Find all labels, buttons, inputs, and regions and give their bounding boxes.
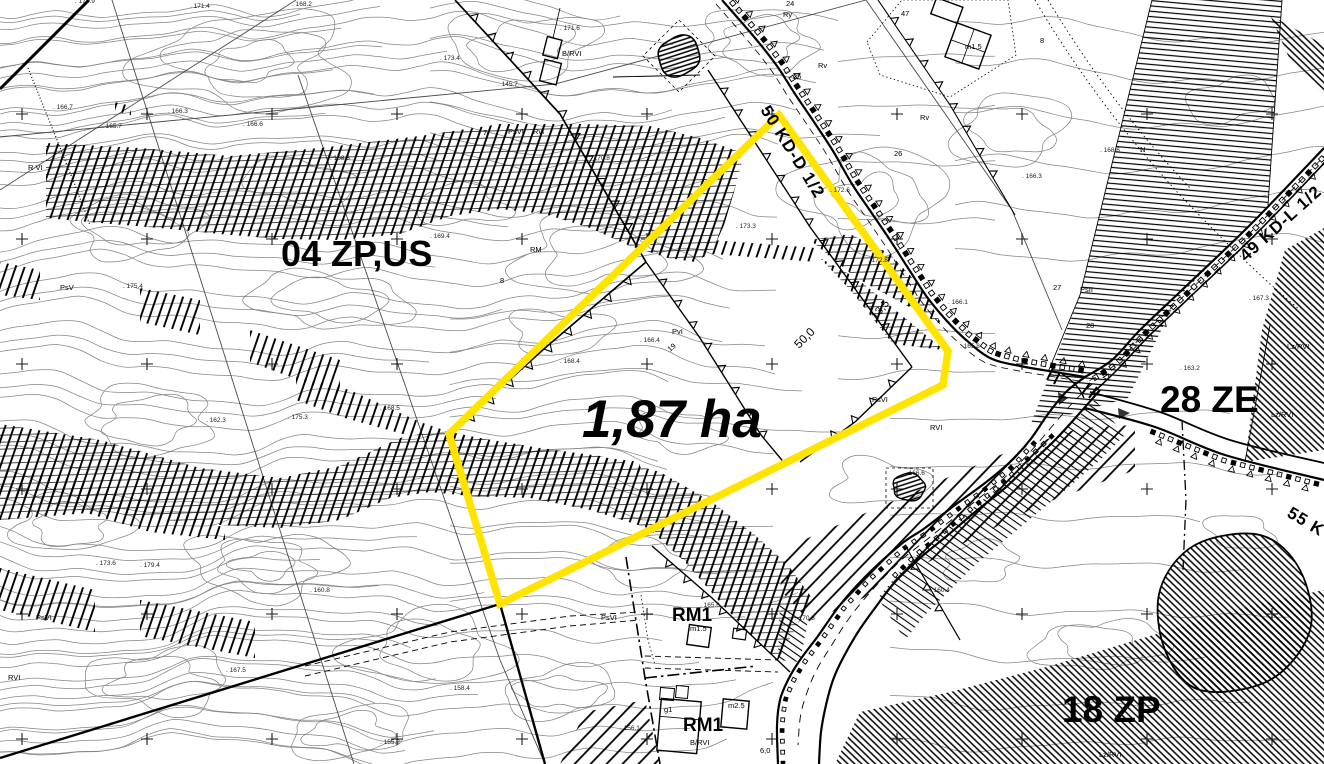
svg-text:. 166.7: . 166.7 (53, 104, 73, 111)
svg-text:7: 7 (483, 128, 487, 137)
svg-text:. 167.5: . 167.5 (226, 667, 246, 674)
svg-text:18 ZP: 18 ZP (1062, 689, 1161, 730)
svg-text:8: 8 (500, 276, 504, 285)
svg-text:. 166.6: . 166.6 (243, 121, 263, 128)
svg-text:. 160.8: . 160.8 (310, 587, 330, 594)
svg-text:04 ZP,US: 04 ZP,US (281, 233, 432, 274)
svg-text:. 160.4: . 160.4 (930, 587, 950, 594)
svg-text:28: 28 (1086, 321, 1094, 330)
svg-text:. 166.3: . 166.3 (1022, 173, 1042, 180)
svg-text:g1: g1 (664, 705, 672, 714)
svg-text:RVI: RVI (930, 423, 942, 432)
svg-text:47: 47 (901, 9, 909, 18)
svg-text:N: N (1140, 145, 1145, 154)
svg-text:Lz/RVI: Lz/RVI (1287, 342, 1309, 351)
svg-text:B/RVI: B/RVI (562, 49, 581, 58)
svg-text:R VI: R VI (28, 163, 43, 172)
svg-text:27: 27 (1053, 283, 1061, 292)
svg-text:. 172.6: . 172.6 (830, 187, 850, 194)
svg-text:. 166.6: . 166.6 (905, 470, 925, 477)
svg-text:. 165.6: . 165.6 (700, 602, 720, 609)
svg-text:. 173.6: . 173.6 (96, 560, 116, 567)
svg-text:. 170.9: . 170.9 (75, 0, 95, 5)
svg-text:PsVI: PsVI (36, 613, 52, 622)
svg-text:1,87 ha: 1,87 ha (582, 390, 762, 449)
svg-text:RvI: RvI (533, 127, 544, 136)
svg-text:PsVI: PsVI (508, 127, 524, 136)
svg-text:26: 26 (894, 149, 902, 158)
svg-text:m1.5: m1.5 (690, 624, 707, 633)
svg-text:PsII: PsII (1080, 285, 1093, 294)
svg-text:. 168.2: . 168.2 (292, 1, 312, 8)
svg-text:6,0: 6,0 (760, 746, 770, 755)
svg-text:Rv: Rv (920, 113, 929, 122)
svg-text:. 173.3: . 173.3 (736, 223, 756, 230)
svg-text:25: 25 (793, 72, 801, 81)
svg-text:Rv: Rv (818, 61, 827, 70)
svg-text:RM1: RM1 (683, 715, 724, 736)
svg-text:PsVI: PsVI (872, 395, 888, 404)
svg-text:. 162.3: . 162.3 (206, 417, 226, 424)
svg-text:24: 24 (786, 0, 794, 8)
svg-text:Ry: Ry (783, 10, 792, 19)
svg-text:. 168.4: . 168.4 (560, 358, 580, 365)
svg-text:PvI: PvI (672, 327, 683, 336)
svg-text:. 171.6: . 171.6 (560, 25, 580, 32)
svg-text:. 168.5: . 168.5 (380, 405, 400, 412)
svg-text:. 175.4: . 175.4 (123, 283, 143, 290)
svg-text:. 172.8: . 172.8 (868, 257, 888, 264)
svg-text:Lz/RVI: Lz/RVI (1099, 750, 1121, 759)
svg-text:. 163.2: . 163.2 (1180, 365, 1200, 372)
svg-text:. 168.3: . 168.3 (330, 155, 350, 162)
svg-text:. 179.4: . 179.4 (140, 562, 160, 569)
svg-text:. 158.4: . 158.4 (450, 685, 470, 692)
svg-text:. 166.1: . 166.1 (948, 299, 968, 306)
svg-text:. 167.3: . 167.3 (1249, 295, 1269, 302)
svg-text:. 156.1: . 156.1 (620, 725, 640, 732)
svg-text:RVI: RVI (8, 673, 20, 682)
svg-text:. 166.3: . 166.3 (168, 108, 188, 115)
svg-text:. 165.7: . 165.7 (102, 123, 122, 130)
svg-text:. 168.6: . 168.6 (1100, 147, 1120, 154)
svg-text:B/RVI: B/RVI (690, 738, 709, 747)
svg-text:. 170.8: . 170.8 (590, 155, 610, 162)
svg-text:. 166.4: . 166.4 (640, 337, 660, 344)
svg-text:PsVI: PsVI (601, 613, 617, 622)
svg-text:Lz/RVI: Lz/RVI (1271, 410, 1293, 419)
svg-text:RM: RM (530, 245, 542, 254)
svg-text:m1.5: m1.5 (965, 42, 982, 51)
svg-text:. 173.4: . 173.4 (440, 55, 460, 62)
svg-text:28 ZE: 28 ZE (1160, 379, 1259, 420)
svg-text:. 169.4: . 169.4 (430, 233, 450, 240)
svg-text:8: 8 (1040, 36, 1044, 45)
svg-text:. 145.7: . 145.7 (498, 81, 518, 88)
svg-text:. 170.3: . 170.3 (795, 615, 815, 622)
svg-text:PsV: PsV (60, 283, 74, 292)
svg-text:. 171.4: . 171.4 (190, 3, 210, 10)
svg-text:m2.5: m2.5 (728, 701, 745, 710)
svg-text:. 175.3: . 175.3 (288, 414, 308, 421)
svg-text:. 155.2: . 155.2 (380, 739, 400, 746)
svg-text:. 165.8: . 165.8 (960, 343, 980, 350)
